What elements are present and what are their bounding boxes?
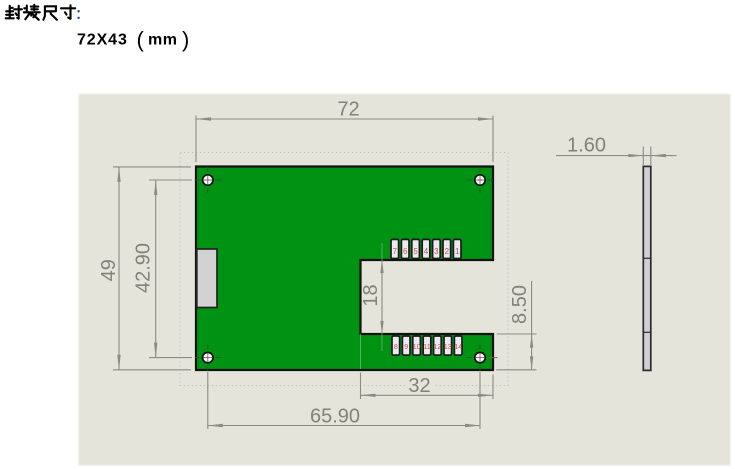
svg-text:72X43: 72X43 xyxy=(77,31,128,48)
svg-text:18: 18 xyxy=(360,284,382,306)
svg-text:12: 12 xyxy=(434,344,442,351)
svg-text:65.90: 65.90 xyxy=(310,405,360,427)
svg-text:8: 8 xyxy=(394,344,398,351)
svg-text:6: 6 xyxy=(403,247,408,256)
svg-text:): ) xyxy=(182,27,189,52)
svg-text:14: 14 xyxy=(454,344,462,351)
svg-text:mm: mm xyxy=(148,31,177,48)
svg-text:8.50: 8.50 xyxy=(509,285,531,324)
svg-text:(: ( xyxy=(137,27,145,52)
svg-text:42.90: 42.90 xyxy=(133,243,155,293)
svg-text:32: 32 xyxy=(408,375,430,397)
svg-text:9: 9 xyxy=(404,344,408,351)
svg-text:1.60: 1.60 xyxy=(567,134,606,156)
svg-text:11: 11 xyxy=(423,344,430,351)
svg-text:13: 13 xyxy=(444,344,452,351)
svg-text:49: 49 xyxy=(98,259,120,281)
svg-text:5: 5 xyxy=(413,247,418,256)
svg-text:3: 3 xyxy=(434,247,439,256)
svg-text:7: 7 xyxy=(393,247,398,256)
svg-text:1: 1 xyxy=(455,247,460,256)
svg-text:2: 2 xyxy=(445,247,450,256)
svg-text:72: 72 xyxy=(337,99,359,121)
svg-text:10: 10 xyxy=(413,344,421,351)
svg-text:4: 4 xyxy=(424,247,429,256)
